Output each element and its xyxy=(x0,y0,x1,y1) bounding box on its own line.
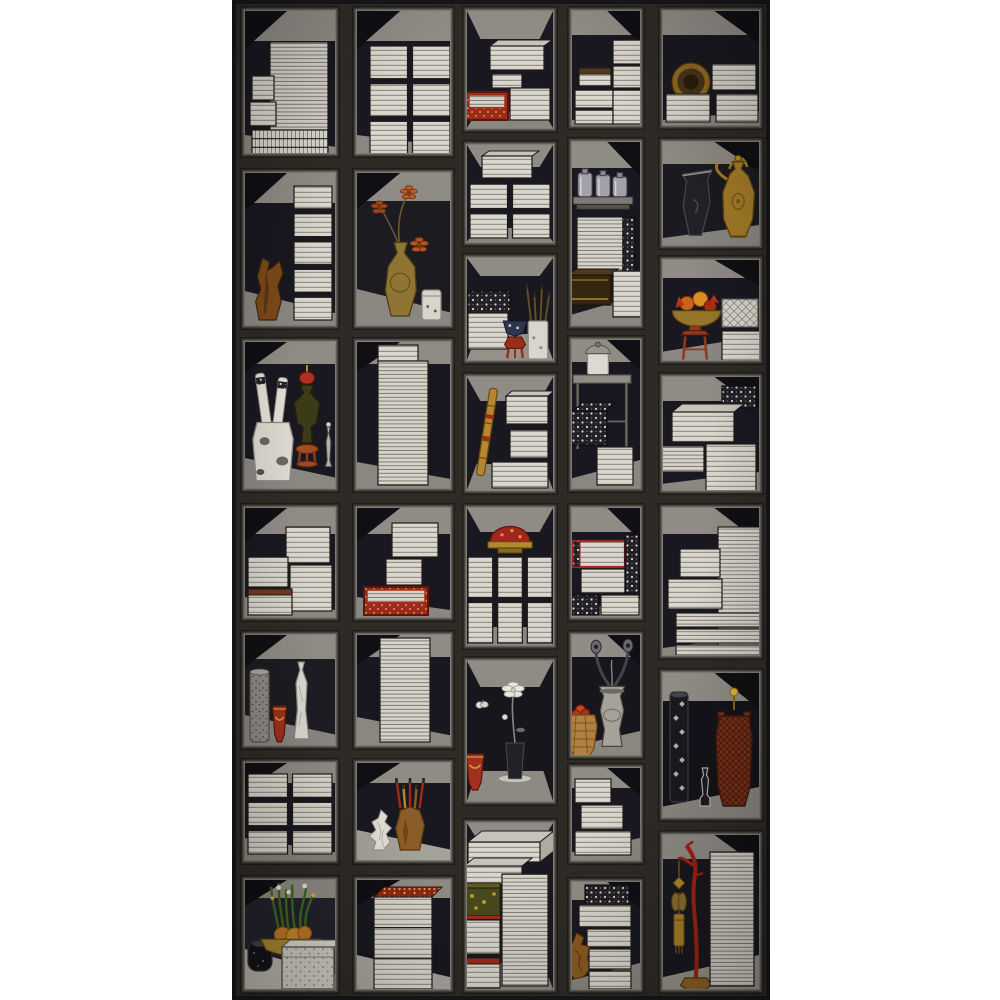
cell-interior xyxy=(663,11,759,125)
stack xyxy=(672,404,744,442)
stack xyxy=(386,559,422,585)
cell-interior xyxy=(567,882,640,989)
latbox xyxy=(722,299,758,327)
stack xyxy=(510,430,548,458)
cell-interior xyxy=(467,258,553,360)
stack xyxy=(581,569,625,593)
dambox xyxy=(282,940,340,989)
shelf-cell-c4r2 xyxy=(567,137,645,330)
shelf-cell-c5r5 xyxy=(658,503,764,660)
jar xyxy=(422,290,441,320)
stack xyxy=(597,447,633,485)
stack xyxy=(613,40,641,64)
shelf-cell-c3r2 xyxy=(462,140,558,247)
cell-interior xyxy=(357,635,450,745)
cell-interior xyxy=(357,763,450,860)
cell-interior xyxy=(466,661,553,801)
cell-interior xyxy=(567,635,640,756)
cell-interior xyxy=(569,340,640,488)
artwork-canvas xyxy=(0,0,1000,1000)
cell-interior xyxy=(357,880,450,989)
stack xyxy=(575,831,631,855)
stack xyxy=(462,920,500,954)
stack xyxy=(250,102,276,126)
stack xyxy=(613,66,641,88)
shelf-cell-c1r7 xyxy=(240,875,340,994)
shelf-cell-c3r3 xyxy=(462,253,558,365)
stack xyxy=(577,217,623,271)
shelf-cell-c1r2 xyxy=(240,168,340,330)
stack xyxy=(676,629,760,643)
cell-interior xyxy=(466,11,553,128)
stack xyxy=(380,638,430,742)
stack xyxy=(581,805,623,829)
stack xyxy=(248,557,288,587)
cell-interior xyxy=(357,508,450,617)
brocstack xyxy=(374,887,442,989)
florbox xyxy=(571,595,599,615)
stack xyxy=(613,90,641,124)
shelf-cell-c1r5 xyxy=(240,630,340,750)
shelf-cell-c5r2 xyxy=(658,137,764,250)
cell-interior xyxy=(663,142,759,245)
stack xyxy=(587,929,631,947)
stack xyxy=(575,90,613,108)
shelf-cell-c1r1 xyxy=(240,6,340,158)
stack xyxy=(378,361,428,485)
stack xyxy=(579,68,611,86)
woodbox xyxy=(569,269,618,305)
florbox xyxy=(585,885,629,905)
cell-interior xyxy=(462,823,554,989)
stack xyxy=(712,64,756,90)
cell-interior xyxy=(245,11,335,156)
stack xyxy=(290,565,332,611)
shelf-cell-c3r4 xyxy=(462,372,558,495)
cell-interior xyxy=(662,377,759,492)
stack xyxy=(468,831,554,862)
shelf-cell-c5r7 xyxy=(658,830,764,994)
florbox xyxy=(623,217,635,271)
stack xyxy=(662,446,704,472)
redwrap xyxy=(573,541,625,567)
cell-interior xyxy=(467,508,553,645)
stack xyxy=(482,151,539,178)
cell-interior xyxy=(467,145,553,242)
stack xyxy=(589,949,631,969)
stack xyxy=(575,110,613,124)
stack xyxy=(666,94,710,122)
chaekgeori-wallpaper-panel xyxy=(232,0,770,1000)
cell-interior xyxy=(572,768,640,860)
stack xyxy=(710,852,754,986)
stack xyxy=(492,462,548,488)
florbox xyxy=(468,291,510,313)
stack xyxy=(706,444,756,492)
cell-interior xyxy=(245,342,335,488)
redbox xyxy=(364,587,428,615)
stack xyxy=(462,958,500,988)
cell-interior xyxy=(245,763,335,860)
cell-interior xyxy=(245,173,335,325)
shelf-cell-c1r4 xyxy=(240,503,340,622)
cell-interior xyxy=(663,260,760,361)
stack xyxy=(575,779,611,803)
cell-interior xyxy=(357,342,450,488)
cell-interior xyxy=(663,508,760,657)
stack xyxy=(270,42,328,130)
cell-interior xyxy=(245,508,335,617)
shelf-cell-c3r5 xyxy=(462,503,558,650)
cell-interior xyxy=(357,173,450,325)
shelf-cell-c3r1 xyxy=(462,6,558,133)
shelf-cell-c2r4 xyxy=(352,503,455,622)
shelf-cell-c5r1 xyxy=(658,6,764,130)
cell-interior xyxy=(663,673,759,817)
shelf-cell-c3r7 xyxy=(462,818,558,994)
shelf-cell-c4r4 xyxy=(567,503,645,622)
shelf-cell-c2r2 xyxy=(352,168,455,330)
stack xyxy=(492,74,522,88)
stack xyxy=(589,971,631,989)
shelf-cell-c5r3 xyxy=(658,255,764,365)
cell-interior xyxy=(245,880,340,989)
cell-interior xyxy=(357,11,450,154)
stack xyxy=(286,527,330,563)
cell-interior xyxy=(569,142,641,325)
cell-interior xyxy=(571,508,640,617)
redbox xyxy=(466,92,508,120)
shelf-cell-c2r1 xyxy=(352,6,455,158)
stack xyxy=(579,905,631,927)
shelf-cell-c4r7 xyxy=(567,877,645,994)
specklecyl xyxy=(250,669,269,742)
stack xyxy=(510,88,550,120)
stack xyxy=(378,345,418,361)
shelf-cell-c1r3 xyxy=(240,337,340,493)
stack xyxy=(252,130,328,156)
cell-interior xyxy=(572,11,641,125)
stack xyxy=(468,313,508,349)
stack xyxy=(601,595,639,615)
stack xyxy=(716,94,758,122)
stack xyxy=(252,76,274,100)
shelf-cell-c5r4 xyxy=(658,372,764,495)
shelf-cell-c2r3 xyxy=(352,337,455,493)
greenbox xyxy=(464,883,500,919)
stack xyxy=(502,874,548,986)
stack xyxy=(490,40,552,70)
shelf-cell-c2r7 xyxy=(352,875,455,994)
shelf-cell-c4r1 xyxy=(567,6,645,130)
shelf-cell-c4r3 xyxy=(567,335,645,493)
darkcyl xyxy=(670,692,688,802)
stack xyxy=(506,391,554,424)
cell-interior xyxy=(467,377,554,490)
stack xyxy=(722,331,760,361)
stack xyxy=(248,589,292,615)
shelf-cell-c3r6 xyxy=(462,656,558,806)
shelf-cell-c5r6 xyxy=(658,668,764,822)
cell-interior xyxy=(245,635,335,745)
stack xyxy=(392,523,438,557)
stack xyxy=(676,613,760,627)
florbox xyxy=(625,535,639,593)
shelf-cell-c4r6 xyxy=(567,763,645,865)
shelf-cell-c2r5 xyxy=(352,630,455,750)
cell-interior xyxy=(663,835,759,990)
shelf-cell-c2r6 xyxy=(352,758,455,865)
stack xyxy=(680,549,720,577)
bowlstand xyxy=(503,321,526,358)
grid xyxy=(294,186,332,320)
stack xyxy=(668,579,722,609)
shelf-cell-c4r5 xyxy=(567,630,645,760)
shelf-cell-c1r6 xyxy=(240,758,340,865)
stack xyxy=(613,271,641,317)
